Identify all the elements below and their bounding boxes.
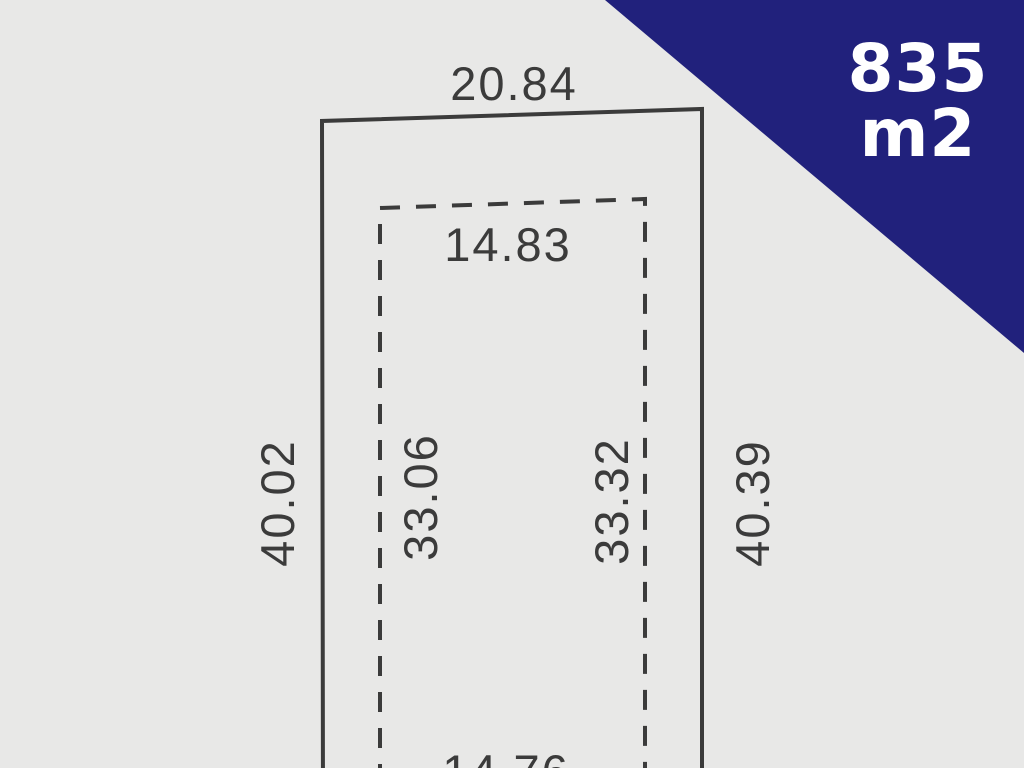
dim-label-inner-left: 33.06 bbox=[394, 387, 448, 607]
dim-label-inner-right: 33.32 bbox=[585, 391, 639, 611]
dim-label-inner-top: 14.83 bbox=[398, 218, 618, 272]
area-badge: 835 m2 bbox=[818, 36, 1018, 166]
area-value: 835 bbox=[818, 36, 1018, 101]
dim-label-outer-right: 40.39 bbox=[726, 393, 780, 613]
dim-label-outer-top: 20.84 bbox=[404, 57, 624, 111]
plot-diagram-canvas: 835 m2 20.84 14.83 14.76 40.02 33.06 33.… bbox=[0, 0, 1024, 768]
area-unit: m2 bbox=[818, 101, 1018, 166]
dim-label-outer-left: 40.02 bbox=[251, 393, 305, 613]
dim-label-inner-bottom: 14.76 bbox=[396, 745, 616, 768]
